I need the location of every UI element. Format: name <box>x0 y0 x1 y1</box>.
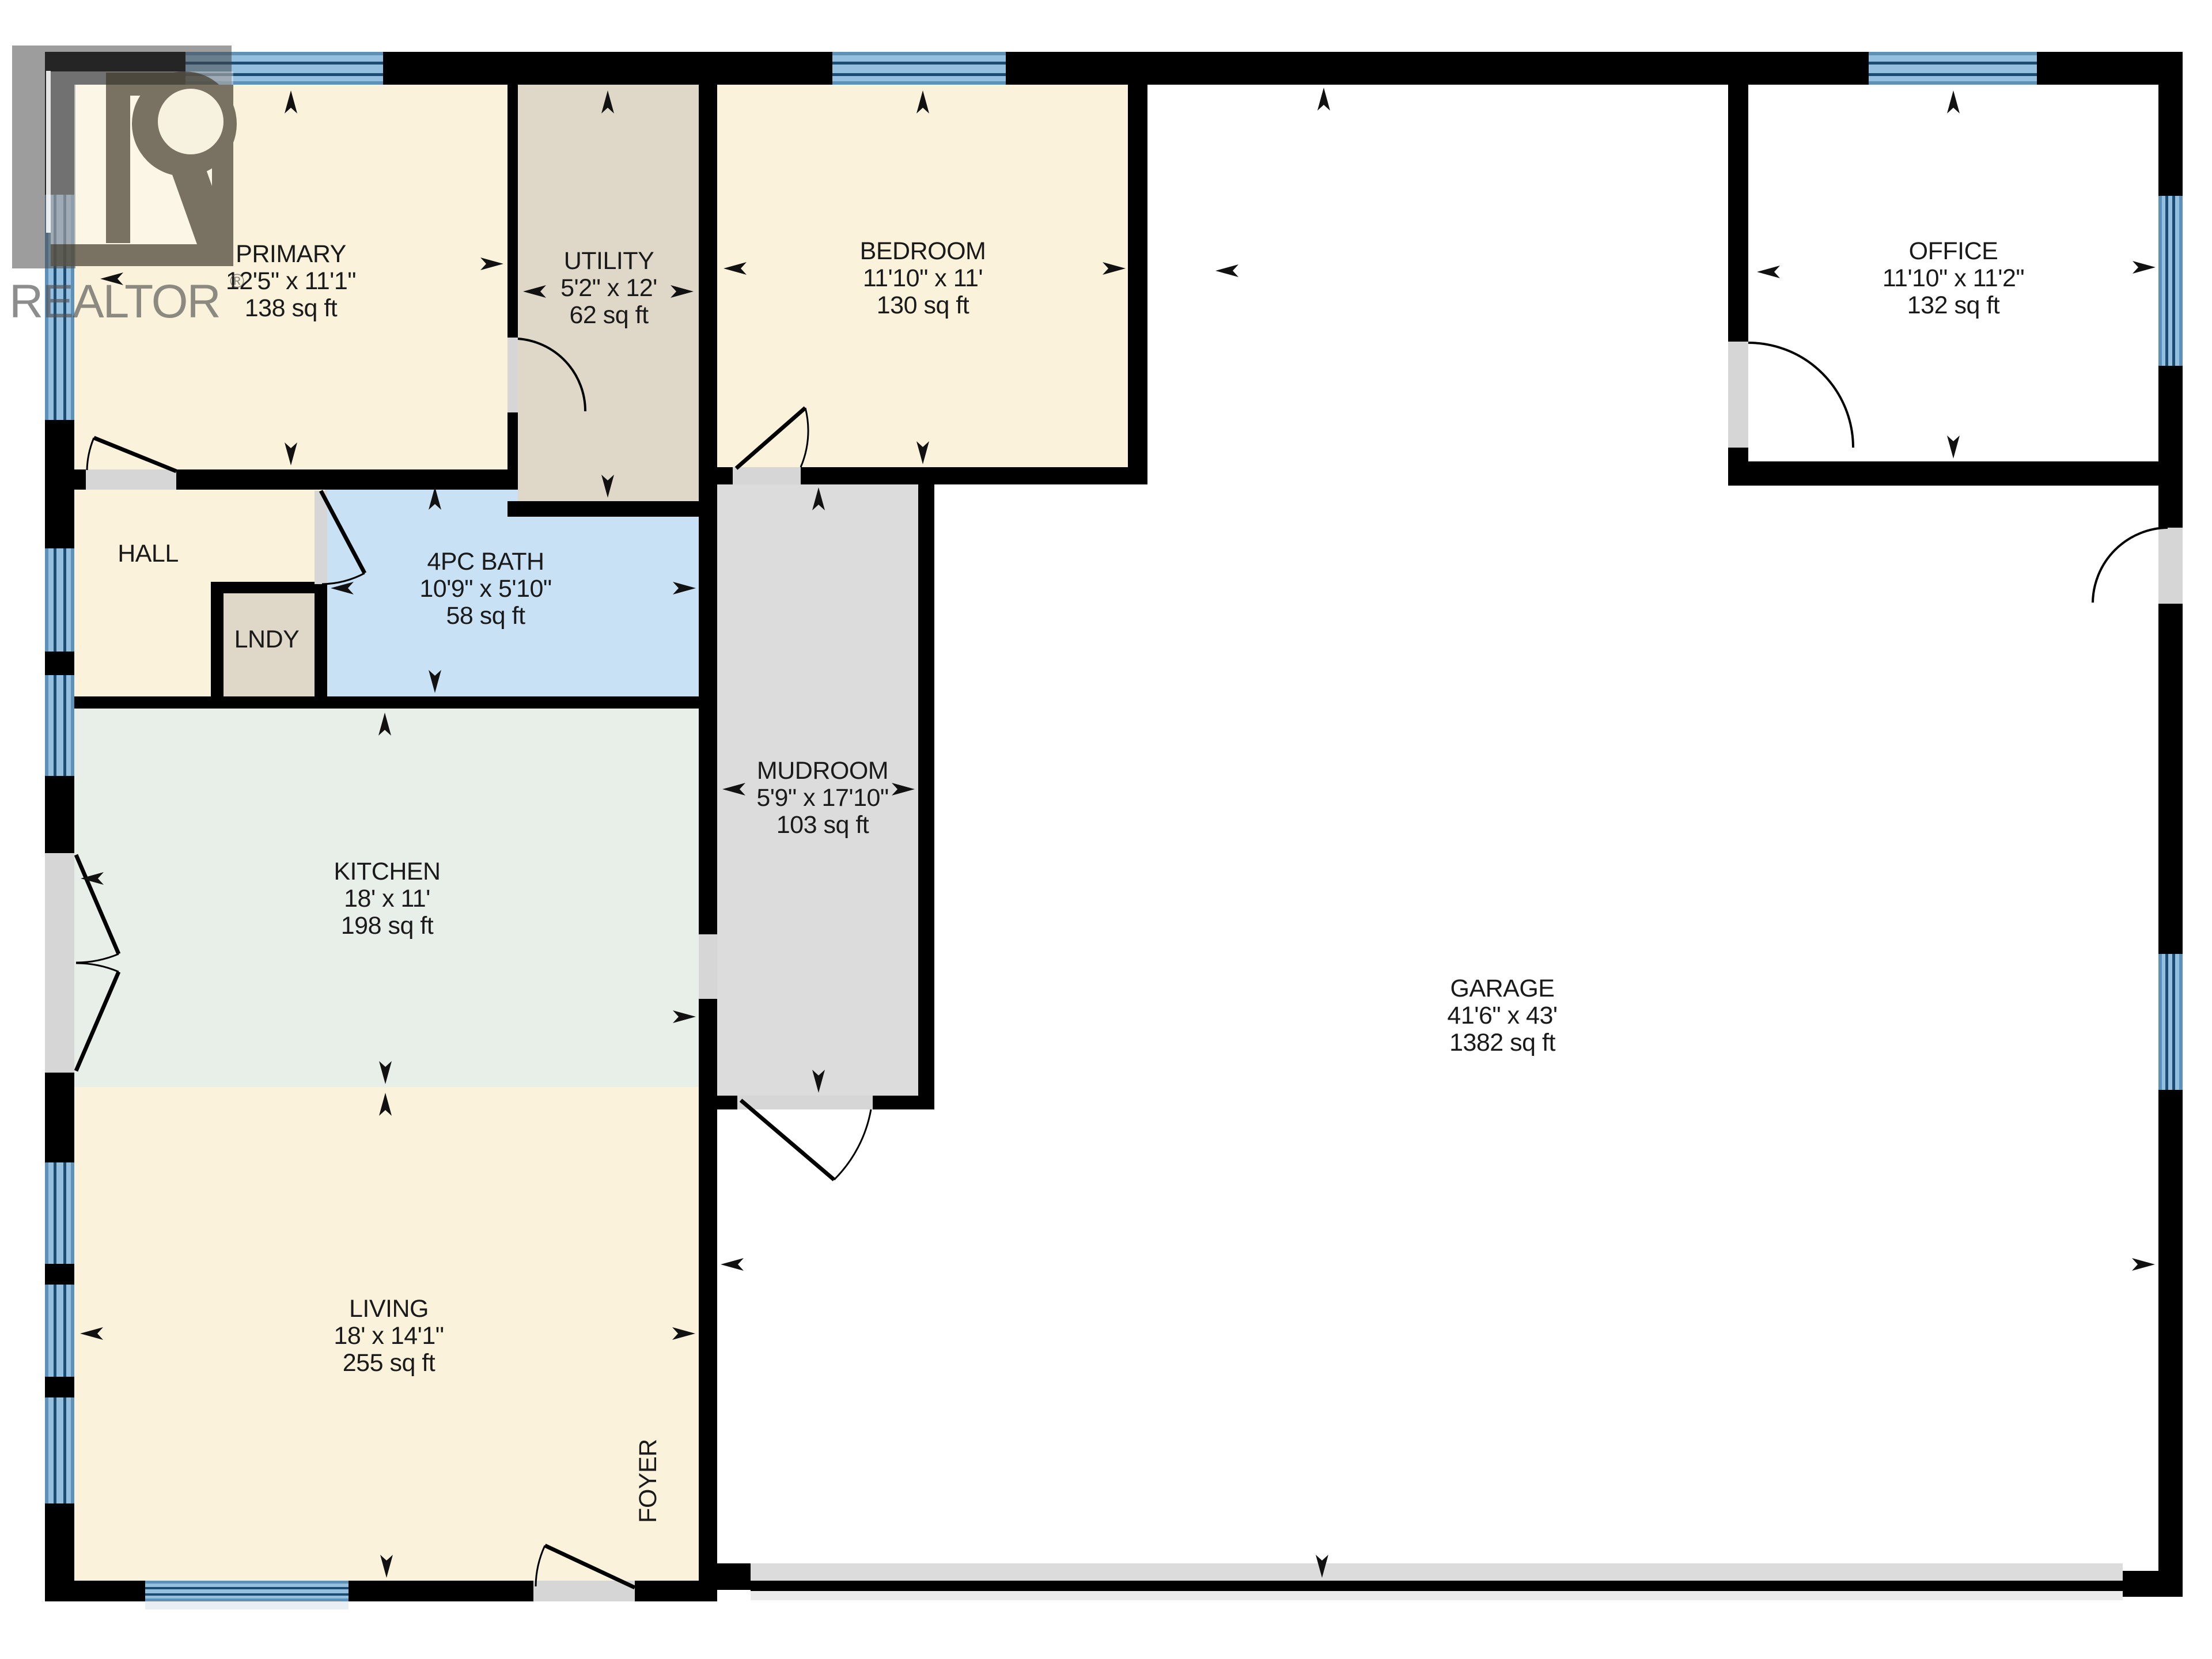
svg-text:41'6" x 43': 41'6" x 43' <box>1447 1002 1557 1029</box>
svg-text:PRIMARY: PRIMARY <box>236 240 346 268</box>
svg-text:132 sq ft: 132 sq ft <box>1907 291 2000 319</box>
svg-text:103 sq ft: 103 sq ft <box>777 811 869 839</box>
svg-text:HALL: HALL <box>118 540 179 567</box>
svg-text:130 sq ft: 130 sq ft <box>877 291 969 319</box>
svg-text:1382 sq ft: 1382 sq ft <box>1449 1029 1555 1056</box>
svg-text:5'9" x 17'10": 5'9" x 17'10" <box>756 784 888 812</box>
svg-text:OFFICE: OFFICE <box>1909 237 1998 265</box>
svg-text:62 sq ft: 62 sq ft <box>569 301 649 329</box>
svg-text:58 sq ft: 58 sq ft <box>446 602 525 630</box>
svg-text:12'5" x 11'1": 12'5" x 11'1" <box>226 267 356 295</box>
svg-text:®: ® <box>230 270 244 292</box>
svg-text:REALTOR: REALTOR <box>9 275 220 328</box>
svg-text:255 sq ft: 255 sq ft <box>343 1349 435 1377</box>
svg-text:UTILITY: UTILITY <box>564 247 654 275</box>
svg-text:BEDROOM: BEDROOM <box>860 237 986 265</box>
svg-text:10'9" x 5'10": 10'9" x 5'10" <box>419 575 551 603</box>
svg-text:LIVING: LIVING <box>349 1295 429 1323</box>
svg-text:5'2" x 12': 5'2" x 12' <box>560 274 657 302</box>
svg-text:4PC BATH: 4PC BATH <box>427 548 544 575</box>
svg-text:11'10" x 11'2": 11'10" x 11'2" <box>1883 264 2024 292</box>
svg-text:138 sq ft: 138 sq ft <box>245 294 338 322</box>
svg-text:MUDROOM: MUDROOM <box>757 757 888 785</box>
svg-text:LNDY: LNDY <box>234 626 300 653</box>
svg-text:FOYER: FOYER <box>634 1439 662 1523</box>
svg-text:18' x 14'1": 18' x 14'1" <box>334 1322 444 1350</box>
svg-text:18' x 11': 18' x 11' <box>344 885 430 912</box>
svg-text:198 sq ft: 198 sq ft <box>341 912 434 940</box>
svg-text:11'10" x 11': 11'10" x 11' <box>863 264 983 292</box>
svg-text:GARAGE: GARAGE <box>1450 975 1555 1002</box>
svg-text:KITCHEN: KITCHEN <box>334 858 440 885</box>
